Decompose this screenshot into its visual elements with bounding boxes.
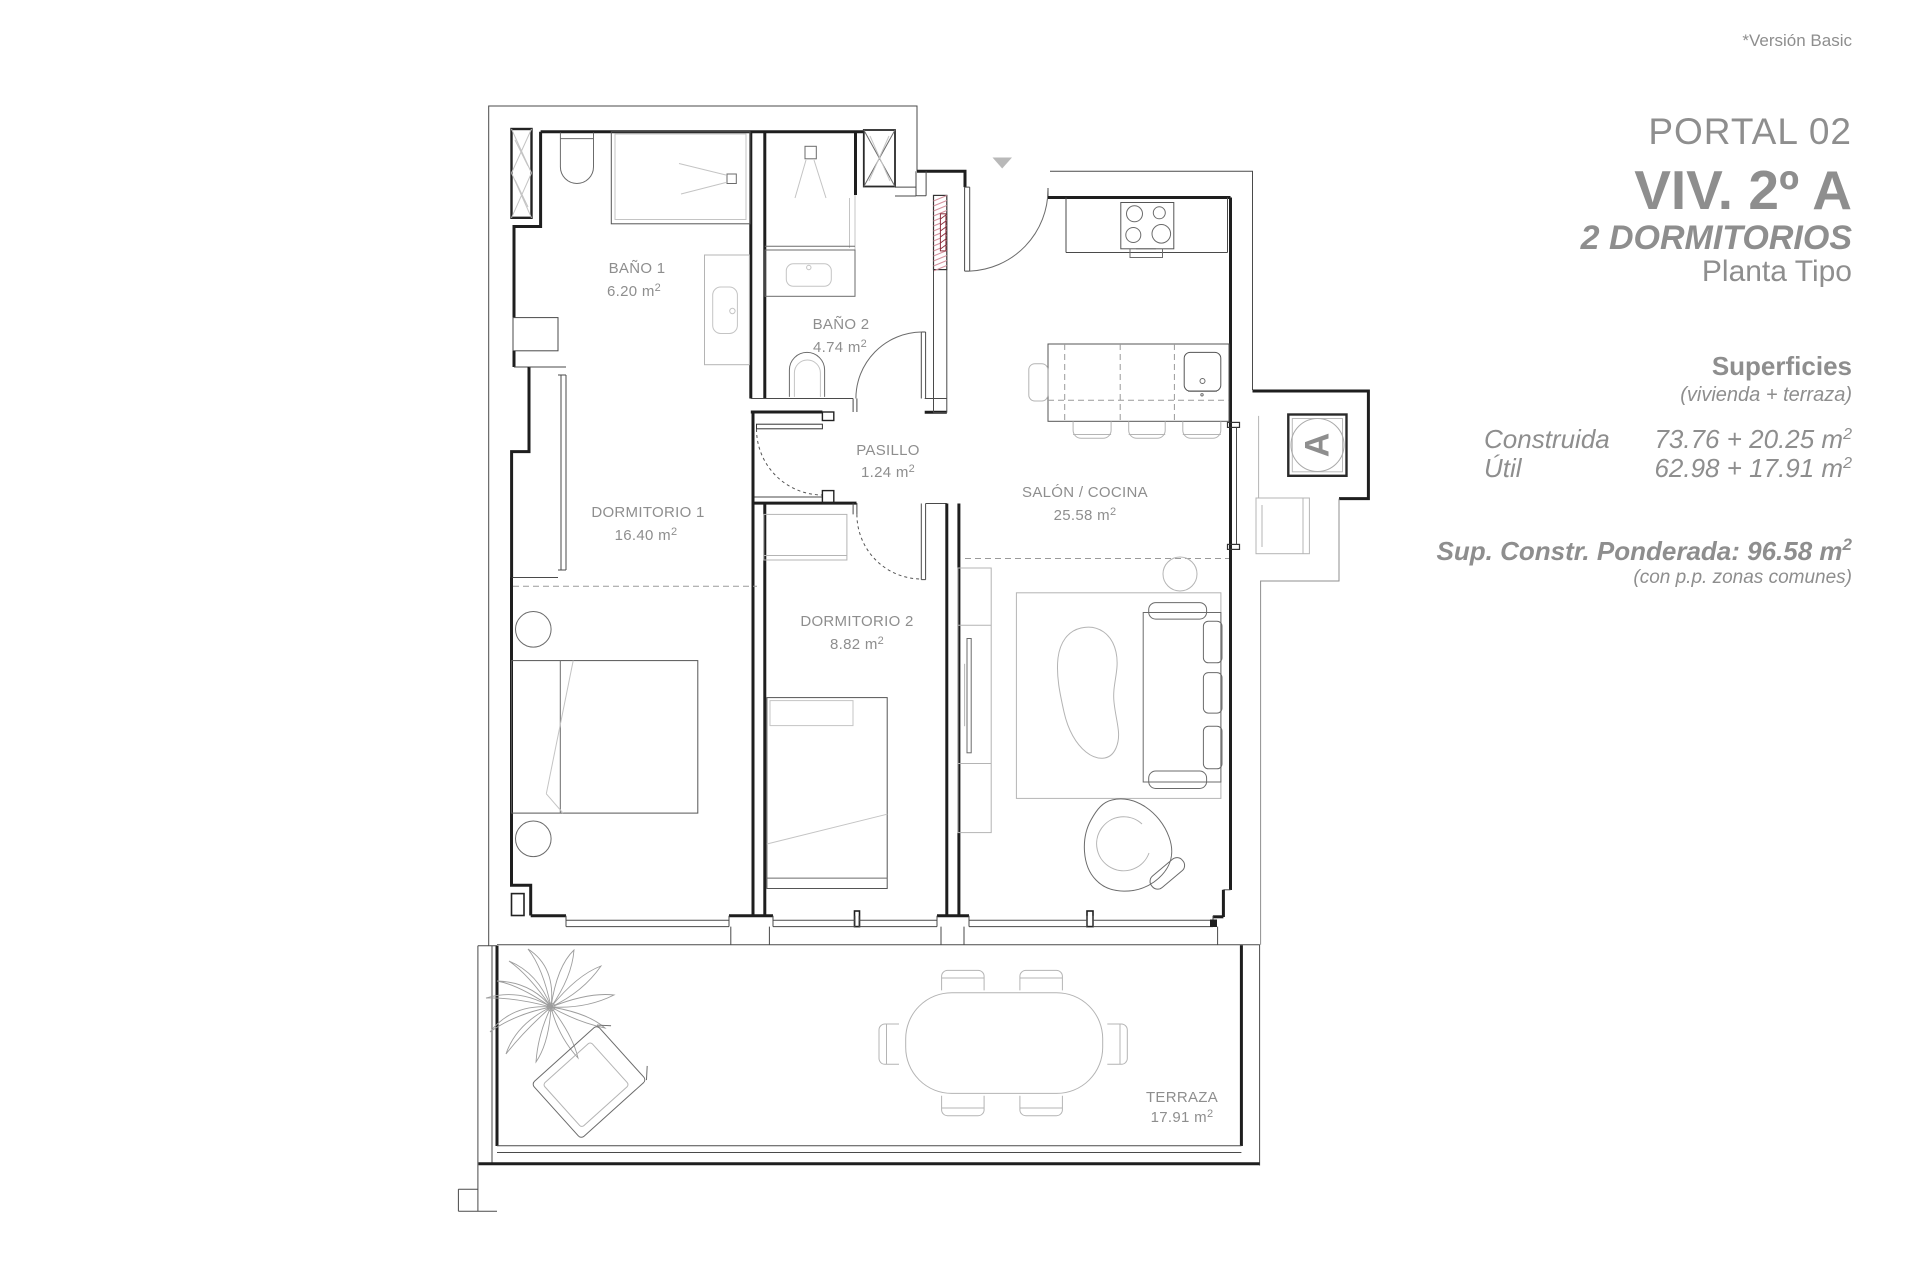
svg-text:6.20 m2: 6.20 m2: [607, 282, 661, 300]
svg-text:PORTAL 02: PORTAL 02: [1648, 111, 1852, 152]
svg-text:VIV. 2º A: VIV. 2º A: [1634, 159, 1852, 221]
svg-text:A: A: [1299, 433, 1337, 458]
svg-text:2 DORMITORIOS: 2 DORMITORIOS: [1580, 219, 1853, 257]
svg-text:Superficies: Superficies: [1712, 351, 1852, 381]
svg-text:TERRAZA: TERRAZA: [1146, 1089, 1218, 1106]
svg-text:73.76 + 20.25 m2: 73.76 + 20.25 m2: [1654, 424, 1852, 454]
svg-text:DORMITORIO 1: DORMITORIO 1: [591, 504, 704, 521]
svg-text:62.98 + 17.91 m2: 62.98 + 17.91 m2: [1654, 453, 1852, 483]
svg-text:Útil: Útil: [1484, 453, 1523, 483]
svg-text:*Versión Basic: *Versión Basic: [1742, 31, 1852, 50]
svg-text:BAÑO 2: BAÑO 2: [813, 316, 870, 333]
svg-text:PASILLO: PASILLO: [856, 442, 920, 459]
svg-text:1.24 m2: 1.24 m2: [861, 463, 915, 481]
svg-text:DORMITORIO 2: DORMITORIO 2: [800, 613, 913, 630]
svg-text:17.91 m2: 17.91 m2: [1151, 1108, 1214, 1126]
svg-text:Sup. Constr. Ponderada: 96.58: Sup. Constr. Ponderada: 96.58 m2: [1437, 535, 1853, 566]
svg-text:8.82 m2: 8.82 m2: [830, 635, 884, 653]
svg-text:Construida: Construida: [1484, 424, 1610, 454]
svg-text:4.74 m2: 4.74 m2: [813, 338, 867, 356]
svg-text:BAÑO 1: BAÑO 1: [609, 260, 666, 277]
svg-text:25.58 m2: 25.58 m2: [1054, 506, 1117, 524]
svg-text:(vivienda + terraza): (vivienda + terraza): [1680, 384, 1852, 406]
svg-text:16.40 m2: 16.40 m2: [615, 526, 678, 544]
svg-text:SALÓN / COCINA: SALÓN / COCINA: [1022, 484, 1148, 501]
svg-text:(con p.p. zonas comunes): (con p.p. zonas comunes): [1633, 567, 1852, 588]
svg-text:Planta Tipo: Planta Tipo: [1702, 255, 1852, 288]
